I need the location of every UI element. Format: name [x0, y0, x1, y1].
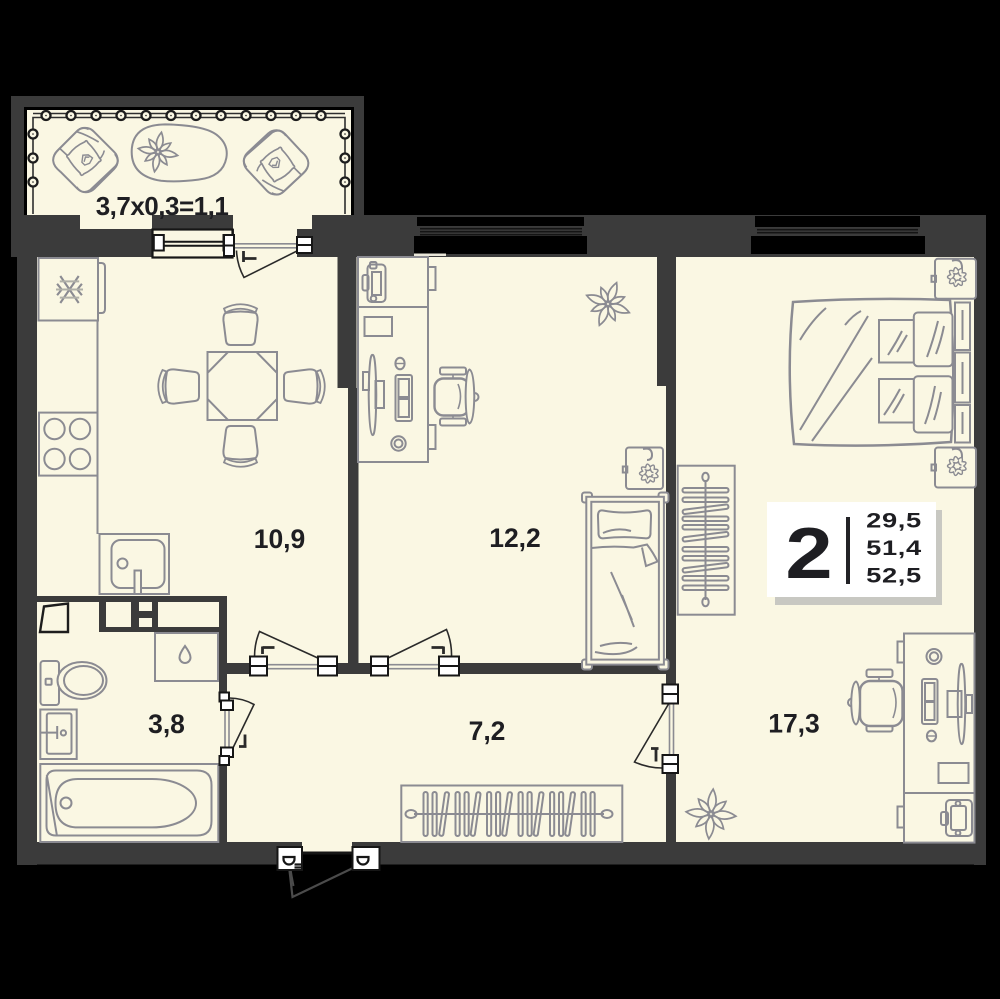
svg-text:12,2: 12,2 [489, 523, 541, 553]
svg-text:2: 2 [785, 513, 832, 593]
svg-text:7,2: 7,2 [469, 716, 506, 746]
svg-text:10,9: 10,9 [254, 524, 306, 554]
svg-text:29,5: 29,5 [866, 509, 922, 533]
svg-text:52,5: 52,5 [866, 564, 922, 588]
svg-text:3,8: 3,8 [148, 709, 185, 739]
svg-text:3,7x0,3=1,1: 3,7x0,3=1,1 [96, 191, 229, 221]
svg-text:51,4: 51,4 [866, 537, 922, 561]
svg-text:17,3: 17,3 [768, 709, 820, 739]
